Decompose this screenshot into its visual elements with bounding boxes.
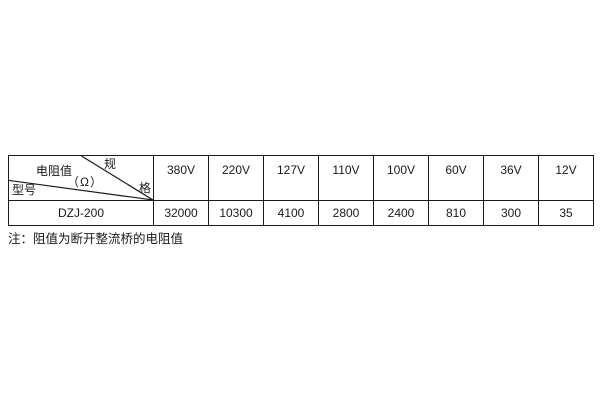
column-header-220v: 220V (209, 156, 264, 201)
model-cell: DZJ-200 (9, 201, 154, 226)
column-header-12v: 12V (539, 156, 594, 201)
column-header-380v: 380V (154, 156, 209, 201)
value-cell-36v: 300 (484, 201, 539, 226)
diagonal-header-cell: 规 格 电阻值 （Ω） 型号 (9, 156, 154, 201)
column-header-36v: 36V (484, 156, 539, 201)
header-row: 规 格 电阻值 （Ω） 型号 380V 220V 127V 110V 100V … (9, 156, 594, 201)
value-cell-127v: 4100 (264, 201, 319, 226)
spec-label-part2: 格 (139, 182, 151, 195)
value-cell-380v: 32000 (154, 201, 209, 226)
value-cell-12v: 35 (539, 201, 594, 226)
resistance-unit-label: （Ω） (67, 176, 103, 189)
page: 规 格 电阻值 （Ω） 型号 380V 220V 127V 110V 100V … (0, 0, 600, 400)
column-header-127v: 127V (264, 156, 319, 201)
table-row: DZJ-200 32000 10300 4100 2800 2400 810 3… (9, 201, 594, 226)
column-header-100v: 100V (374, 156, 429, 201)
value-cell-100v: 2400 (374, 201, 429, 226)
value-cell-220v: 10300 (209, 201, 264, 226)
model-label: 型号 (12, 184, 36, 197)
footnote: 注：阻值为断开整流桥的电阻值 (8, 228, 183, 247)
value-cell-110v: 2800 (319, 201, 374, 226)
value-cell-60v: 810 (429, 201, 484, 226)
spec-label-part1: 规 (104, 158, 116, 171)
column-header-110v: 110V (319, 156, 374, 201)
resistance-spec-table: 规 格 电阻值 （Ω） 型号 380V 220V 127V 110V 100V … (8, 155, 594, 226)
column-header-60v: 60V (429, 156, 484, 201)
